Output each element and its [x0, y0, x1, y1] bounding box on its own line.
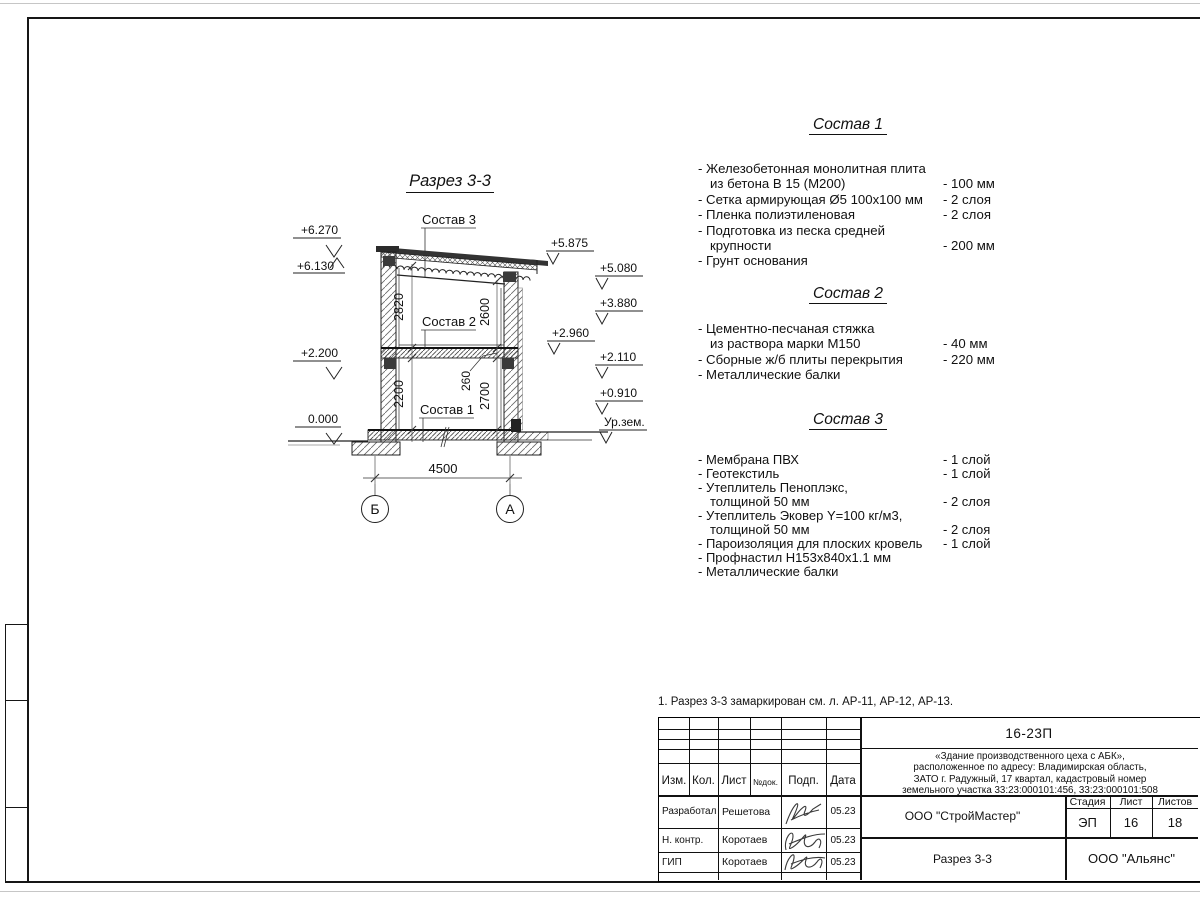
list-item: - Цементно-песчаная стяжка: [698, 321, 874, 336]
col-header-ndok: №док.: [750, 764, 781, 795]
sign-role: Н. контр.: [659, 829, 720, 852]
dim-2200: 2200: [392, 380, 406, 408]
axis-label-a: А: [505, 501, 515, 517]
list-item: - Геотекстиль: [698, 466, 779, 481]
elevation-value: +3.880: [600, 296, 637, 310]
list-item: - Сетка армирующая Ø5 100х100 мм: [698, 192, 923, 207]
list-item: - Утеплитель Пеноплэкс,: [698, 480, 848, 495]
elevation-value: 0.000: [308, 412, 338, 426]
list-item: - Подготовка из песка средней: [698, 223, 885, 238]
list-item: - Пленка полиэтиленовая: [698, 207, 855, 222]
list-item: толщиной 50 мм: [710, 494, 810, 509]
sheet-number: 16: [1110, 809, 1152, 837]
elevation-value: +2.110: [600, 350, 636, 364]
list-item: - Грунт основания: [698, 253, 808, 268]
list-item: - Железобетонная монолитная плита: [698, 161, 926, 176]
label-sostav-1: Состав 1: [420, 402, 474, 417]
dim-2600: 2600: [478, 298, 492, 326]
col-header-izm: Изм.: [659, 764, 689, 795]
list-item: толщиной 50 мм: [710, 522, 810, 537]
sheet-header: Лист: [1110, 795, 1152, 808]
list-item: - Сборные ж/б плиты перекрытия: [698, 352, 903, 367]
elevation-value: +5.080: [600, 261, 637, 275]
list-item: - Утеплитель Эковер Y=100 кг/м3,: [698, 508, 902, 523]
composition-1-title: Состав 1: [698, 116, 998, 134]
dim-2820: 2820: [392, 293, 406, 321]
dim-4500: 4500: [429, 461, 458, 476]
section-composition-labels: Состав 3 Состав 2 Состав 1: [419, 212, 476, 442]
col-header-data: Дата: [826, 764, 860, 795]
elevation-value: +2.200: [301, 346, 338, 360]
elevation-value: Ур.зем.: [604, 415, 645, 429]
list-item: крупности: [710, 238, 771, 253]
list-item: - Профнастил Н153х840х1.1 мм: [698, 550, 891, 565]
axis-label-b: Б: [370, 501, 379, 517]
col-header-kol: Кол.: [689, 764, 718, 795]
section-view: 2820 2600 2200 260 2700 Состав 3 Состав …: [280, 165, 700, 535]
elevation-value: +0.910: [600, 386, 637, 400]
list-item: из раствора марки М150: [710, 336, 860, 351]
list-item: - Металлические балки: [698, 367, 840, 382]
sign-name: Коротаев: [719, 829, 782, 852]
document-number: 16-23П: [860, 718, 1198, 748]
elevation-value: +6.130: [297, 259, 334, 273]
stage-header: Стадия: [1065, 795, 1110, 808]
contractor-name: ООО "СтройМастер": [860, 796, 1065, 837]
sheets-header: Листов: [1152, 795, 1198, 808]
composition-1-list: - Железобетонная монолитная плита из бет…: [698, 161, 1008, 269]
list-item: - Пароизоляция для плоских кровель: [698, 536, 922, 551]
elevation-marks-left: +6.270 +6.130 +2.200 0.000: [293, 223, 345, 444]
dim-2700: 2700: [478, 382, 492, 410]
sheet-title: Разрез 3-3: [860, 838, 1065, 880]
span-dimension: 4500 Б А: [362, 456, 524, 523]
project-description: «Здание производственного цеха с АБК», р…: [864, 751, 1196, 795]
company-name: ООО "Альянс": [1065, 838, 1198, 880]
sign-role: ГИП: [659, 853, 720, 872]
composition-3-list: - Мембрана ПВХ- 1 слой - Геотекстиль- 1 …: [698, 452, 1008, 578]
composition-2-title: Состав 2: [698, 285, 998, 303]
composition-2-list: - Цементно-песчаная стяжка из раствора м…: [698, 321, 1008, 383]
elevation-marks-right: +5.875 +5.080 +3.880 +2.960 +2.110 +0.91…: [546, 236, 647, 443]
dim-260: 260: [459, 371, 473, 391]
sign-date: 05.23: [826, 796, 860, 828]
list-item: из бетона В 15 (М200): [710, 176, 845, 191]
elevation-value: +6.270: [301, 223, 338, 237]
sign-date: 05.23: [826, 853, 860, 872]
col-header-list: Лист: [718, 764, 750, 795]
stage-value: ЭП: [1065, 809, 1110, 837]
signature-icon: [781, 848, 829, 874]
sheet-note: 1. Разрез 3-3 замаркирован см. л. АР-11,…: [658, 696, 953, 708]
elevation-value: +2.960: [552, 326, 589, 340]
sign-date: 05.23: [826, 829, 860, 852]
sign-name: Коротаев: [719, 853, 782, 872]
list-item: - Мембрана ПВХ: [698, 452, 799, 467]
sign-name: Решетова: [719, 796, 782, 828]
composition-3-title: Состав 3: [698, 411, 998, 429]
list-item: - Металлические балки: [698, 564, 838, 579]
label-sostav-3: Состав 3: [422, 212, 476, 227]
col-header-podp: Подп.: [781, 764, 826, 795]
sign-role: Разработал: [659, 796, 720, 828]
title-block: Изм. Кол. Лист №док. Подп. Дата Разработ…: [658, 717, 1200, 882]
roof-structure: [376, 246, 548, 284]
label-sostav-2: Состав 2: [422, 314, 476, 329]
sheets-total: 18: [1152, 809, 1198, 837]
signature-icon: [783, 798, 825, 828]
elevation-value: +5.875: [551, 236, 588, 250]
